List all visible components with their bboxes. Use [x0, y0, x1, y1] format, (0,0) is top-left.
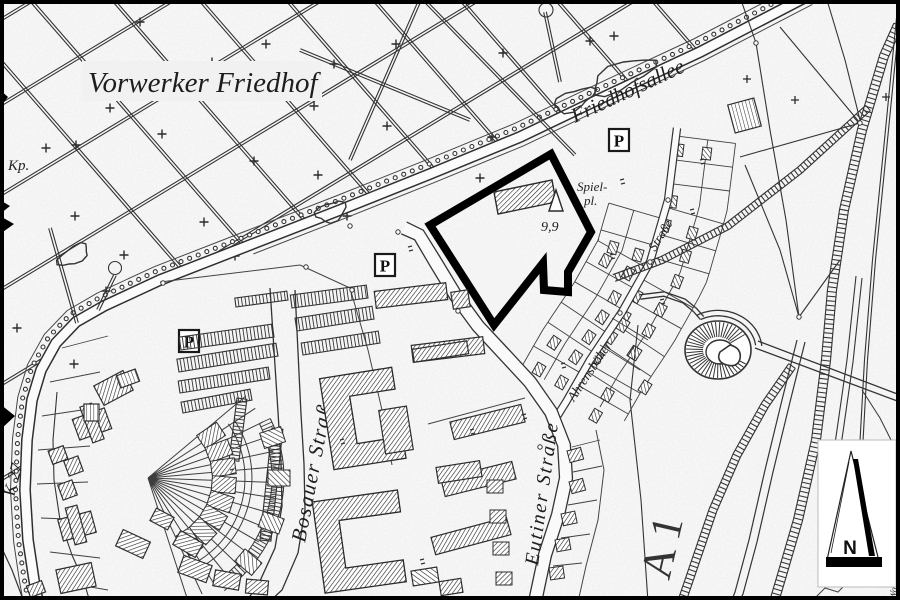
svg-text:N: N	[843, 538, 857, 559]
svg-text:Kp.: Kp.	[7, 158, 29, 174]
svg-text:pl.: pl.	[583, 193, 597, 208]
svg-text:Vorwerker Friedhof: Vorwerker Friedhof	[88, 67, 321, 99]
svg-text:P: P	[380, 257, 390, 276]
svg-text:P: P	[614, 132, 624, 151]
svg-text:9,9: 9,9	[541, 220, 559, 235]
svg-text:Spiel-: Spiel-	[577, 179, 607, 194]
